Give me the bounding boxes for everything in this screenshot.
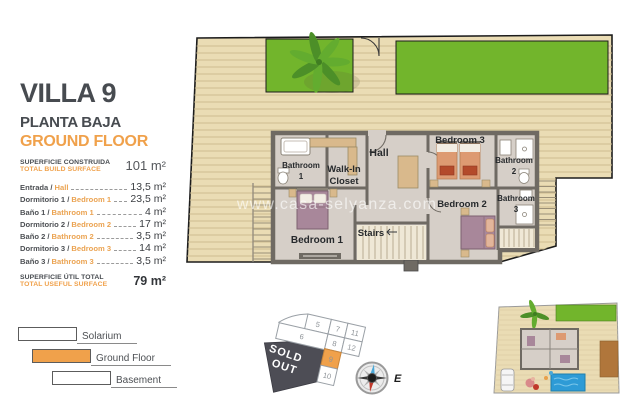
floor-subtitle-en: GROUND FLOOR (20, 133, 166, 151)
label-stairs: Stairs (358, 228, 384, 239)
mini-side-deck (600, 341, 618, 377)
room-row-hall: Entrada / Hall 13,5 m² (20, 181, 166, 193)
room-row-bedroom3: Dormitorio 3 / Bedroom 3 14 m² (20, 242, 166, 254)
lawn-area (396, 41, 608, 94)
compass-rose: E (357, 363, 403, 394)
room-value: 23,5 m² (130, 193, 166, 205)
main-floor-plan: Bathroom 1 Walk-In Closet Hall Bedroom 1… (186, 31, 612, 271)
room-value: 13,5 m² (130, 181, 166, 193)
room-value: 14 m² (139, 242, 166, 254)
build-surface-value: 101 m² (126, 158, 166, 173)
dotted-leader (97, 206, 142, 215)
room-label-es: Baño 1 / (20, 208, 50, 217)
room-value: 17 m² (139, 218, 166, 230)
room-list: Entrada / Hall 13,5 m² Dormitorio 1 / Be… (20, 181, 166, 267)
label-bathroom2-line2: 2 (512, 167, 517, 176)
floor-subtitle-es: PLANTA BAJA (20, 114, 166, 131)
room-label-en: Bedroom 3 (71, 244, 111, 253)
legend-label-solarium: Solarium (77, 331, 137, 344)
legend-label-basement: Basement (111, 375, 177, 388)
label-bedroom1: Bedroom 1 (291, 235, 344, 246)
build-surface-label-es: SUPERFICIE CONSTRUIDA (20, 159, 126, 166)
brochure-page: Bathroom 1 Walk-In Closet Hall Bedroom 1… (0, 0, 630, 402)
info-panel: VILLA 9 PLANTA BAJA GROUND FLOOR SUPERFI… (20, 80, 166, 288)
villa-title: VILLA 9 (20, 80, 166, 107)
dotted-leader (97, 255, 133, 264)
room-row-bedroom2: Dormitorio 2 / Bedroom 2 17 m² (20, 218, 166, 230)
compass-east-label: E (394, 373, 402, 385)
legend-item-basement: Basement (52, 371, 188, 385)
label-bathroom1-line1: Bathroom (282, 161, 320, 170)
legend-item-solarium: Solarium (18, 327, 188, 341)
mini-villa-thumbnail (494, 299, 619, 393)
room-row-bathroom1: Baño 1 / Bathroom 1 4 m² (20, 206, 166, 218)
room-value: 3,5 m² (136, 255, 166, 267)
stair-nook-floor (500, 228, 535, 248)
legend-item-ground-floor: Ground Floor (32, 349, 188, 363)
wall-protrusion (404, 260, 418, 271)
dotted-leader (97, 230, 133, 239)
build-surface-label-en: TOTAL BUILD SURFACE (20, 166, 126, 173)
room-value: 4 m² (145, 206, 166, 218)
mini-lawn (556, 305, 616, 321)
legend-label-ground-floor: Ground Floor (91, 353, 171, 366)
room-label-es: Dormitorio 2 / (20, 220, 69, 229)
room-label-en: Bathroom 2 (52, 232, 94, 241)
label-walkin-line1: Walk-In (327, 164, 361, 175)
nook-stairs-treads (504, 229, 534, 247)
mini-house (521, 329, 578, 369)
room-row-bathroom2: Baño 2 / Bathroom 2 3,5 m² (20, 230, 166, 242)
useful-surface-value: 79 m² (133, 274, 166, 288)
label-bathroom3-line2: 3 (514, 205, 519, 214)
useful-surface-label-en: TOTAL USEFUL SURFACE (20, 281, 133, 288)
legend-swatch-solarium (18, 327, 77, 341)
room-label-en: Bathroom 1 (52, 208, 94, 217)
label-bathroom3-line1: Bathroom (497, 194, 535, 203)
useful-surface-block: SUPERFICIE ÚTIL TOTAL TOTAL USEFUL SURFA… (20, 274, 166, 288)
room-label-es: Baño 3 / (20, 257, 50, 266)
dotted-leader (114, 242, 136, 251)
room-label-es: Entrada / (20, 183, 53, 192)
label-bedroom3: Bedroom 3 (435, 135, 485, 146)
label-bathroom2-line1: Bathroom (495, 156, 533, 165)
room-label-es: Baño 2 / (20, 232, 50, 241)
room-label-en: Hall (55, 183, 69, 192)
room-row-bathroom3: Baño 3 / Bathroom 3 3,5 m² (20, 255, 166, 267)
room-row-bedroom1: Dormitorio 1 / Bedroom 1 23,5 m² (20, 193, 166, 205)
legend: Solarium Ground Floor Basement (18, 327, 188, 393)
mini-toy-orange (544, 376, 548, 380)
hall-wardrobe (398, 156, 418, 188)
mini-car (501, 369, 514, 391)
dotted-leader (114, 218, 136, 227)
dotted-leader (114, 193, 127, 202)
room-label-en: Bathroom 3 (52, 257, 94, 266)
label-walkin-line2: Closet (329, 176, 359, 187)
mini-toy-blue (549, 371, 553, 375)
room-label-es: Dormitorio 3 / (20, 244, 69, 253)
label-bathroom1-line2: 1 (299, 172, 304, 181)
mini-pool (551, 374, 585, 391)
room-label-en: Bedroom 1 (71, 195, 111, 204)
label-hall: Hall (369, 147, 388, 159)
watermark: www.casa-selyanza.com (236, 196, 437, 213)
label-bedroom2: Bedroom 2 (437, 199, 487, 210)
room-label-es: Dormitorio 1 / (20, 195, 69, 204)
legend-swatch-basement (52, 371, 111, 385)
room-label-en: Bedroom 2 (71, 220, 111, 229)
legend-swatch-ground-floor (32, 349, 91, 363)
build-surface-block: SUPERFICIE CONSTRUIDA TOTAL BUILD SURFAC… (20, 158, 166, 173)
lot-map: 5 7 11 6 8 12 9 10 SOLD OUT (254, 306, 365, 402)
room-value: 3,5 m² (136, 230, 166, 242)
useful-surface-label-es: SUPERFICIE ÚTIL TOTAL (20, 274, 133, 281)
dotted-leader (71, 181, 127, 190)
